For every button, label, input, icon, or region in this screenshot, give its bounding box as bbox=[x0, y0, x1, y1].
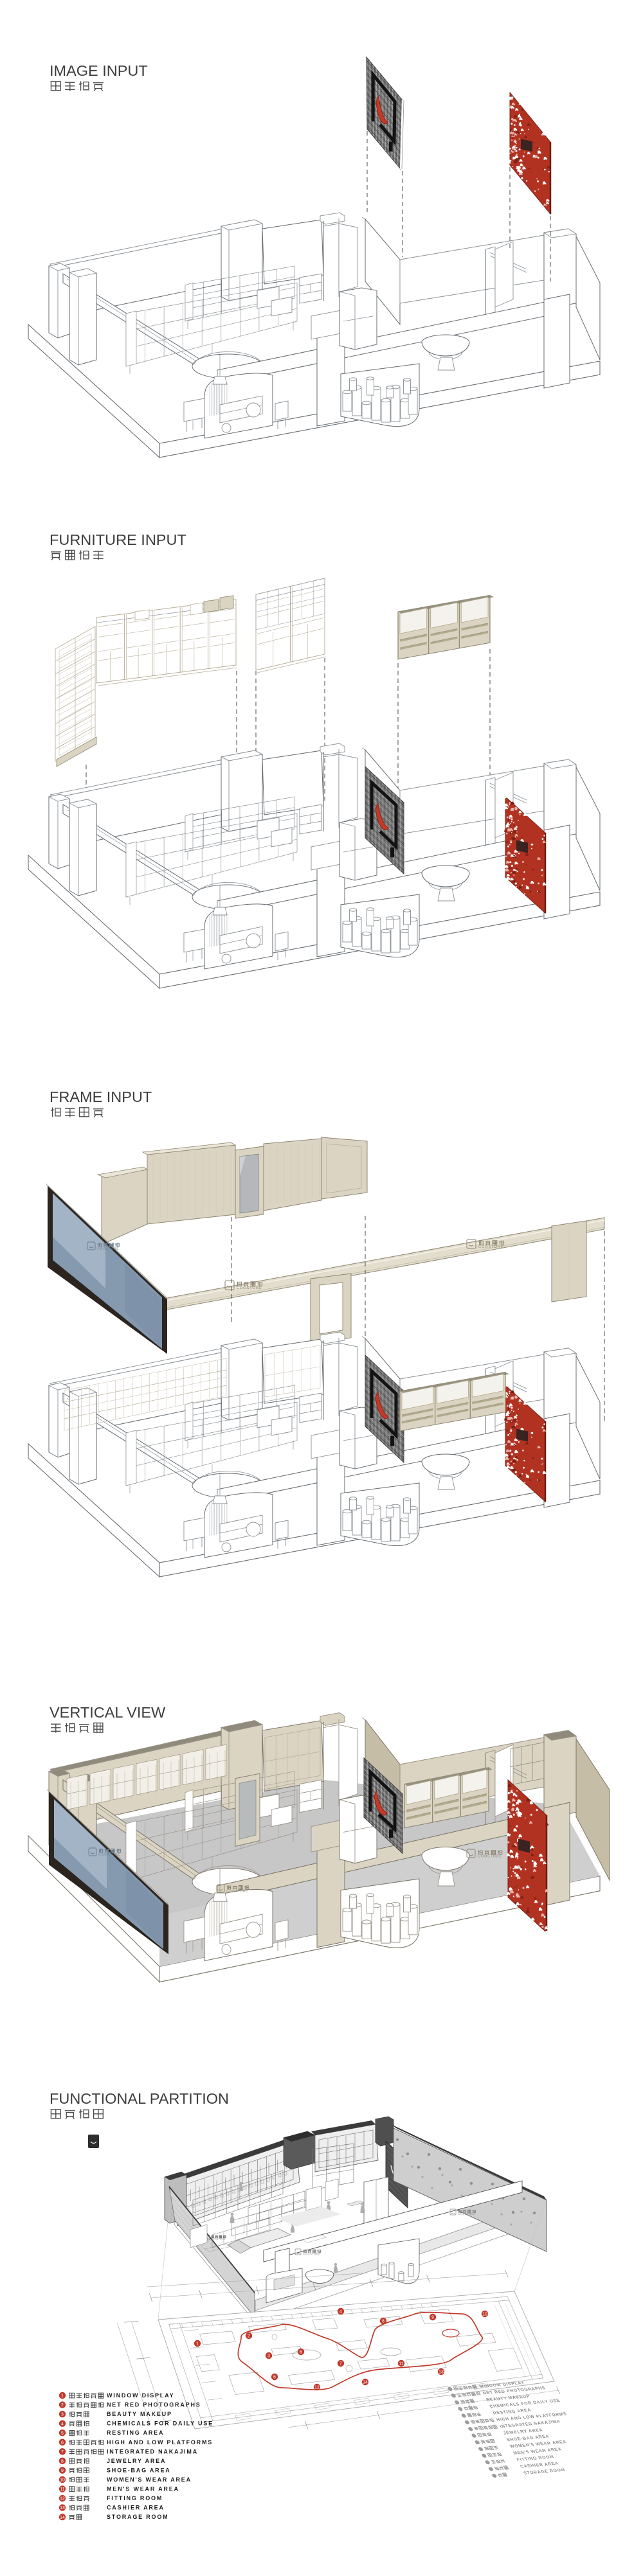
svg-text:9: 9 bbox=[431, 2316, 434, 2320]
svg-text:CHEMICALS FOR DAILY USE: CHEMICALS FOR DAILY USE bbox=[107, 2421, 213, 2427]
svg-text:INTEGRATED NAKAJIMA: INTEGRATED NAKAJIMA bbox=[107, 2448, 198, 2455]
svg-text:FRAME INPUT: FRAME INPUT bbox=[50, 1088, 152, 1105]
svg-text:COOSTORE: COOSTORE bbox=[98, 1852, 120, 1856]
svg-text:10: 10 bbox=[482, 2313, 487, 2317]
svg-text:7: 7 bbox=[340, 2362, 342, 2367]
svg-text:VERTICAL VIEW: VERTICAL VIEW bbox=[50, 1704, 166, 1721]
svg-text:RESTING AREA: RESTING AREA bbox=[107, 2429, 164, 2436]
svg-text:13: 13 bbox=[60, 2506, 65, 2510]
svg-text:6: 6 bbox=[300, 2350, 302, 2355]
svg-text:CASHIER AREA: CASHIER AREA bbox=[107, 2505, 165, 2511]
svg-text:1: 1 bbox=[196, 2342, 199, 2347]
svg-text:14: 14 bbox=[363, 2381, 368, 2385]
svg-text:COOSTORE: COOSTORE bbox=[237, 1286, 262, 1290]
svg-text:MEN'S WEAR AREA: MEN'S WEAR AREA bbox=[107, 2486, 179, 2492]
svg-text:3: 3 bbox=[61, 2413, 64, 2417]
svg-text:COOSTORE: COOSTORE bbox=[303, 2252, 320, 2255]
svg-text:13: 13 bbox=[439, 2370, 444, 2375]
svg-text:COOSTORE: COOSTORE bbox=[458, 2212, 475, 2216]
svg-text:8: 8 bbox=[382, 2320, 385, 2324]
svg-text:WINDOW DISPLAY: WINDOW DISPLAY bbox=[107, 2392, 174, 2399]
svg-text:7: 7 bbox=[61, 2450, 64, 2455]
svg-text:COOSTORE: COOSTORE bbox=[211, 2238, 226, 2241]
svg-text:11: 11 bbox=[60, 2487, 64, 2492]
svg-text:4: 4 bbox=[61, 2422, 64, 2426]
svg-text:WOMEN'S WEAR AREA: WOMEN'S WEAR AREA bbox=[107, 2476, 192, 2483]
svg-text:2: 2 bbox=[61, 2403, 64, 2408]
svg-text:FUNCTIONAL PARTITION: FUNCTIONAL PARTITION bbox=[50, 2090, 229, 2107]
svg-text:JEWELRY AREA: JEWELRY AREA bbox=[107, 2458, 166, 2464]
svg-text:8: 8 bbox=[61, 2459, 64, 2464]
svg-text:HIGH AND LOW PLATFORMS: HIGH AND LOW PLATFORMS bbox=[107, 2439, 213, 2446]
svg-text:5: 5 bbox=[61, 2431, 64, 2436]
svg-text:10: 10 bbox=[60, 2478, 65, 2483]
svg-text:FITTING ROOM: FITTING ROOM bbox=[107, 2495, 163, 2501]
svg-text:3: 3 bbox=[267, 2354, 270, 2359]
svg-text:BEAUTY MAKEUP: BEAUTY MAKEUP bbox=[107, 2411, 172, 2417]
svg-text:12: 12 bbox=[60, 2497, 65, 2501]
svg-text:COOSTORE: COOSTORE bbox=[97, 1247, 119, 1250]
svg-text:COOSTORE: COOSTORE bbox=[226, 1889, 248, 1893]
svg-text:2: 2 bbox=[248, 2334, 250, 2339]
svg-text:SHOE-BAG AREA: SHOE-BAG AREA bbox=[107, 2467, 171, 2473]
svg-text:6: 6 bbox=[61, 2440, 64, 2445]
svg-text:4: 4 bbox=[340, 2310, 342, 2314]
svg-text:14: 14 bbox=[60, 2516, 65, 2520]
svg-text:5: 5 bbox=[273, 2376, 276, 2380]
svg-text:1: 1 bbox=[61, 2394, 64, 2399]
svg-text:COOSTORE: COOSTORE bbox=[478, 1855, 502, 1859]
svg-text:IMAGE INPUT: IMAGE INPUT bbox=[50, 62, 148, 79]
svg-text:NET RED PHOTOGRAPHS: NET RED PHOTOGRAPHS bbox=[107, 2402, 201, 2408]
svg-text:9: 9 bbox=[61, 2469, 64, 2473]
svg-text:11: 11 bbox=[399, 2362, 403, 2367]
svg-text:COOSTORE: COOSTORE bbox=[478, 1245, 504, 1249]
svg-text:STORAGE ROOM: STORAGE ROOM bbox=[107, 2514, 168, 2520]
svg-text:FURNITURE INPUT: FURNITURE INPUT bbox=[50, 531, 186, 548]
svg-text:12: 12 bbox=[314, 2386, 320, 2390]
